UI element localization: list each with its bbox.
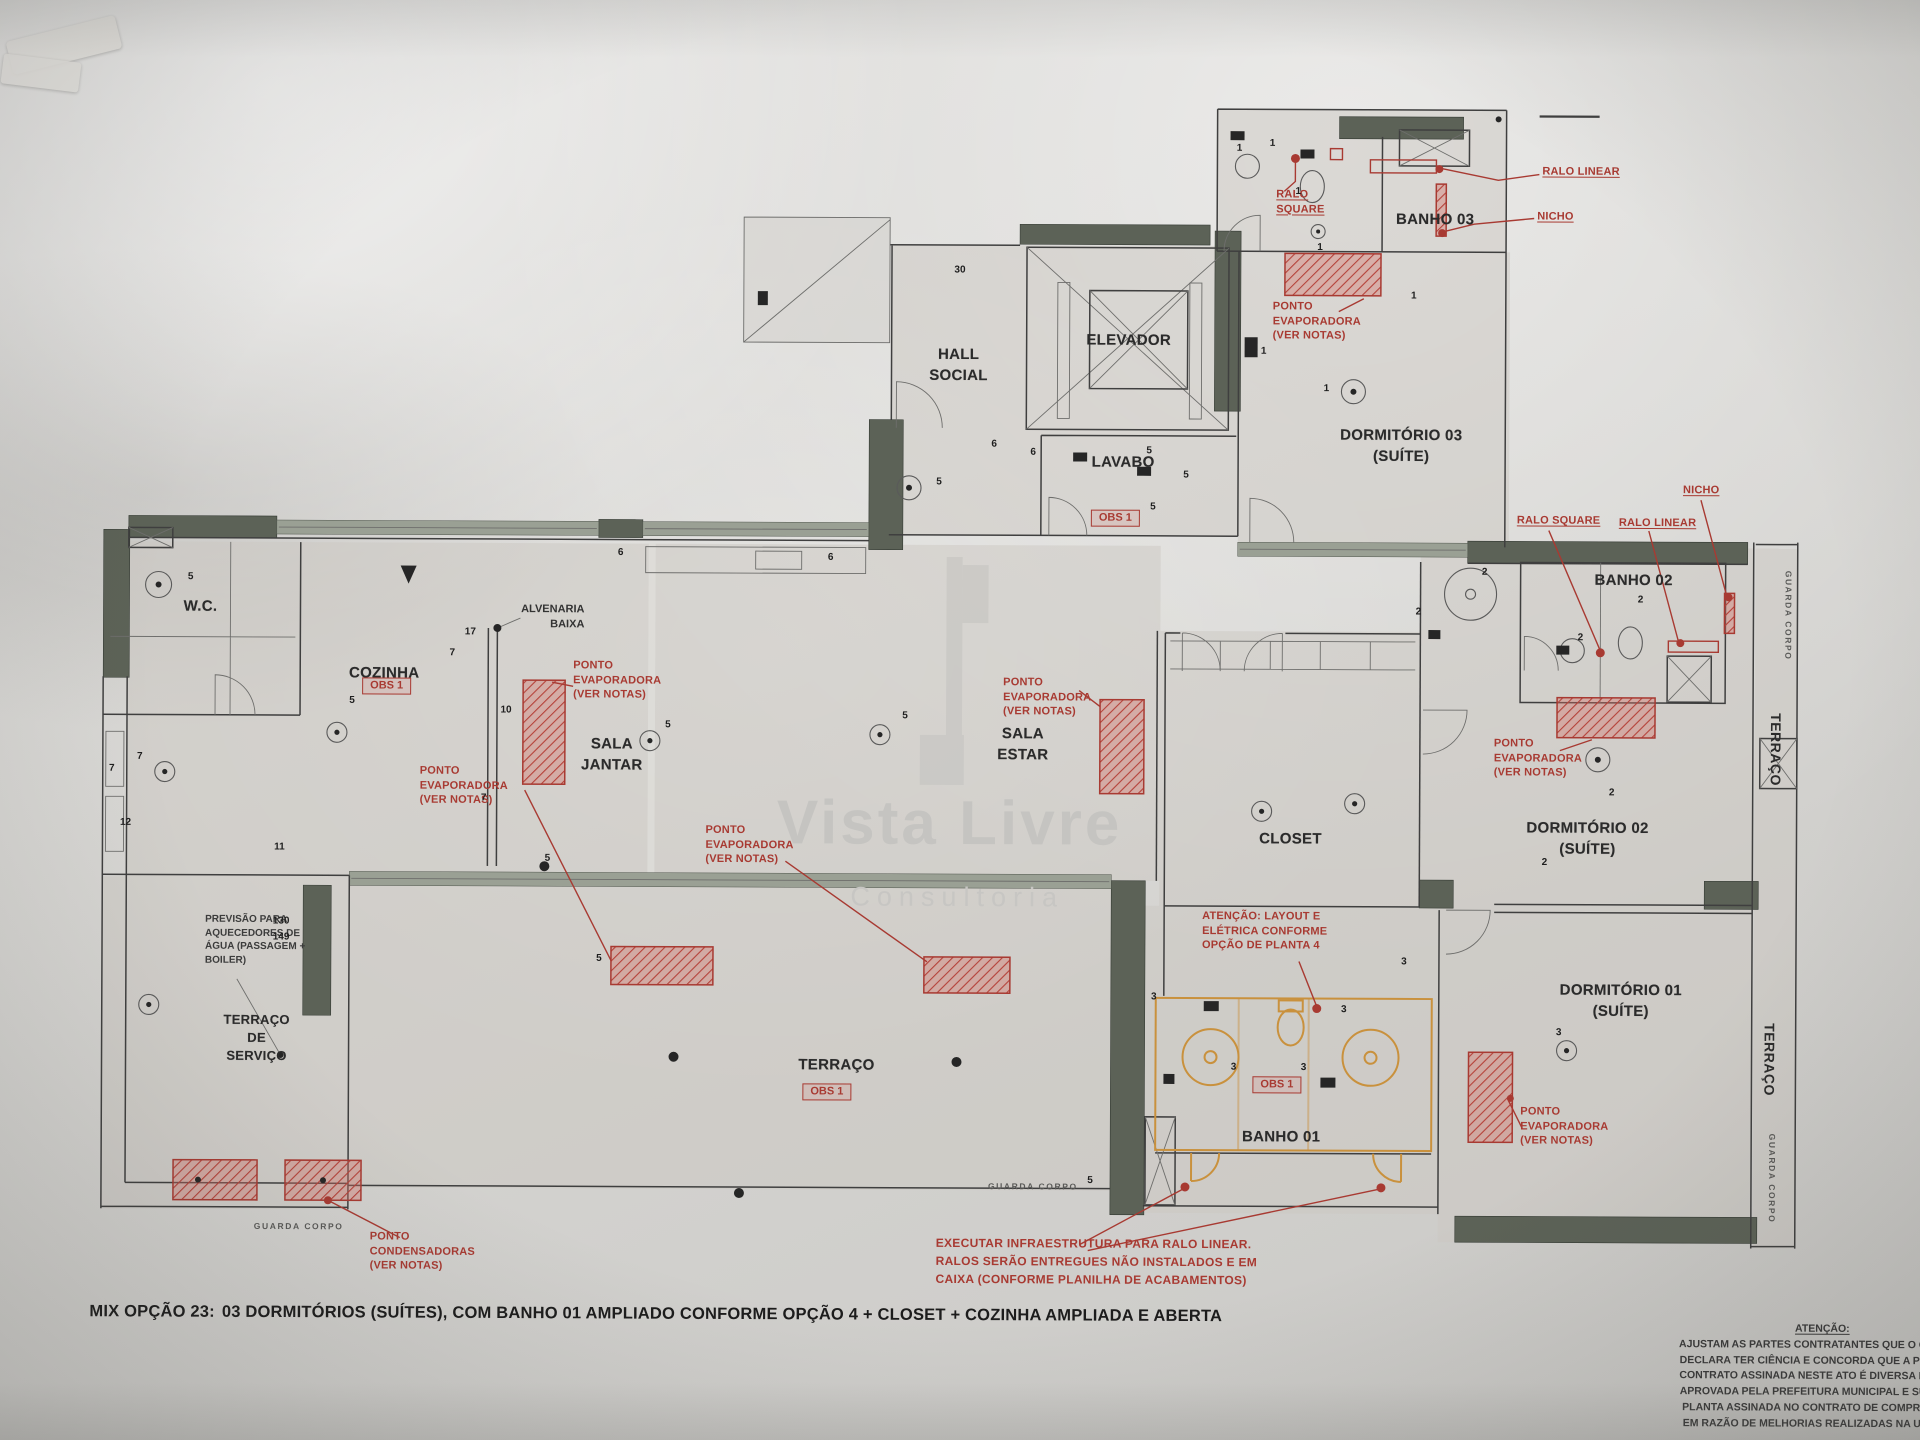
dimension-marker: 7 [109, 763, 115, 774]
annotation-ralo-linear-banho03: RALO LINEAR [1542, 165, 1619, 180]
annotation-guarda-corpo-3: GUARDA CORPO [1783, 571, 1793, 661]
room-label-sala-jantar: SALA JANTAR [581, 734, 643, 776]
dimension-marker: 1 [1261, 346, 1267, 357]
room-label-sala-estar: SALA ESTAR [997, 724, 1048, 766]
dimension-marker: 1 [1237, 143, 1243, 154]
dimension-marker: 30 [954, 264, 965, 275]
dimension-marker: 5 [936, 476, 942, 487]
dimension-marker: 3 [1556, 1027, 1562, 1038]
legal-note: ATENÇÃO: AJUSTAM AS PARTES CONTRATANTES … [1652, 1321, 1920, 1433]
room-label-dormitorio01: DORMITÓRIO 01 (SUÍTE) [1560, 981, 1682, 1023]
dimension-marker: 1 [1270, 138, 1276, 149]
room-label-banho02: BANHO 02 [1594, 571, 1672, 592]
dimension-marker: 6 [618, 547, 624, 558]
room-label-terraco: TERRAÇO [798, 1055, 874, 1076]
room-label-dormitorio02: DORMITÓRIO 02 (SUÍTE) [1526, 818, 1648, 860]
annotation-ralo-linear-banho02: RALO LINEAR [1619, 516, 1696, 531]
legal-note-line: EM RAZÃO DE MELHORIAS REALIZADAS NA UNID… [1652, 1416, 1920, 1433]
dimension-marker: 1 [1317, 242, 1323, 253]
dimension-marker: 5 [1150, 501, 1156, 512]
legal-note-line: AJUSTAM AS PARTES CONTRATANTES QUE O COM… [1652, 1337, 1920, 1354]
room-label-lavabo: LAVABO [1092, 453, 1155, 474]
dimension-marker: 10 [500, 704, 511, 715]
dimension-marker: 6 [991, 439, 997, 450]
room-label-banho03: BANHO 03 [1396, 210, 1474, 231]
dimension-marker: 7 [449, 647, 455, 658]
dimension-marker: 7 [481, 792, 487, 803]
annotation-ponto-evaporadora-dorm01: PONTO EVAPORADORA (VER NOTAS) [1520, 1104, 1608, 1148]
room-label-terraco-lateral-superior: TERRAÇO [1768, 713, 1784, 786]
dimension-marker: 5 [545, 853, 551, 864]
legal-note-title: ATENÇÃO: [1652, 1321, 1920, 1338]
dimension-marker: 5 [665, 719, 671, 730]
dimension-marker: 5 [1087, 1175, 1093, 1186]
dimension-marker: 3 [1231, 1062, 1237, 1073]
room-label-banho01: BANHO 01 [1242, 1127, 1320, 1148]
dimension-marker: 5 [596, 953, 602, 964]
obs1-badge-terraco: OBS 1 [802, 1083, 851, 1100]
annotation-ponto-evaporadora-dorm02: PONTO EVAPORADORA (VER NOTAS) [1494, 736, 1582, 780]
dimension-marker: 2 [1609, 787, 1615, 798]
dimension-marker: 1 [1296, 186, 1302, 197]
dimension-marker: 5 [1146, 445, 1152, 456]
dimension-marker: 6 [828, 552, 834, 563]
annotation-ralo-square-banho02: RALO SQUARE [1517, 513, 1601, 528]
annotation-ponto-evaporadora-terraco-2: PONTO EVAPORADORA (VER NOTAS) [705, 823, 793, 867]
floorplan-photo: Vista Livre Consultoria ELEVADOR HALL SO… [0, 0, 1920, 1440]
annotation-alvenaria-baixa: ALVENARIA BAIXA [518, 602, 584, 632]
dimension-marker: 1 [1411, 290, 1417, 301]
room-label-terraco-servico: TERRAÇO DE SERVIÇO [223, 1011, 290, 1065]
obs1-badge-banho01: OBS 1 [1252, 1076, 1301, 1093]
dimension-marker: 17 [465, 626, 476, 637]
annotation-ponto-evaporadora-sala-estar: PONTO EVAPORADORA (VER NOTAS) [1003, 675, 1091, 719]
dimension-marker: 2 [1578, 632, 1584, 643]
plan-caption-prefix: MIX OPÇÃO 23: [89, 1302, 215, 1321]
room-label-hall-social: HALL SOCIAL [929, 345, 988, 387]
dimension-marker: 2 [1638, 594, 1644, 605]
dimension-marker: 6 [1030, 447, 1036, 458]
dimension-marker: 12 [120, 817, 131, 828]
dimension-marker: 7 [137, 751, 143, 762]
dimension-marker: 1 [1324, 383, 1330, 394]
plan-caption-text: 03 DORMITÓRIOS (SUÍTES), COM BANHO 01 AM… [222, 1303, 1222, 1325]
dimension-marker: 5 [188, 571, 194, 582]
room-label-closet: CLOSET [1259, 829, 1322, 850]
room-label-terraco-lateral-inferior: TERRAÇO [1761, 1023, 1777, 1096]
legal-note-line: APROVADA PELA PREFEITURA MUNICIPAL E SUB… [1652, 1384, 1920, 1401]
watermark-title: Vista Livre [777, 787, 1123, 860]
floorplan-sheet: Vista Livre Consultoria ELEVADOR HALL SO… [0, 0, 1920, 1440]
annotation-ponto-evaporadora-sala-jantar: PONTO EVAPORADORA (VER NOTAS) [573, 658, 661, 702]
annotation-guarda-corpo-2: GUARDA CORPO [988, 1181, 1078, 1191]
room-label-elevador: ELEVADOR [1086, 331, 1171, 352]
annotation-ponto-evaporadora-dorm03: PONTO EVAPORADORA (VER NOTAS) [1273, 299, 1361, 343]
dimension-marker: 130 [273, 916, 290, 927]
dimension-marker: 3 [1301, 1062, 1307, 1073]
room-label-dormitorio03: DORMITÓRIO 03 (SUÍTE) [1340, 426, 1462, 468]
dimension-marker: 2 [1416, 606, 1422, 617]
dimension-marker: 3 [1151, 991, 1157, 1002]
dimension-marker: 3 [1341, 1004, 1347, 1015]
annotation-ponto-condensadoras: PONTO CONDENSADORAS (VER NOTAS) [370, 1229, 475, 1273]
legal-note-line: CONTRATO ASSINADA NESTE ATO É DIVERSA DA… [1652, 1368, 1920, 1385]
dimension-marker: 11 [274, 842, 285, 853]
legal-note-line: DECLARA TER CIÊNCIA E CONCORDA QUE A PLA… [1652, 1353, 1920, 1370]
dimension-marker: 5 [349, 695, 355, 706]
annotation-previsao-aquecedores: PREVISÃO PARA AQUECEDORES DE ÁGUA (PASSA… [205, 913, 306, 967]
dimension-marker: 5 [1183, 469, 1189, 480]
dimension-marker: 149 [273, 932, 290, 943]
obs1-badge-lavabo: OBS 1 [1091, 510, 1140, 527]
dimension-marker: 2 [1542, 857, 1548, 868]
legal-note-line: PLANTA ASSINADA NO CONTRATO DE COMPRA E … [1652, 1400, 1920, 1417]
annotation-guarda-corpo-1: GUARDA CORPO [254, 1221, 344, 1231]
annotation-nicho-banho02: NICHO [1683, 483, 1720, 498]
watermark-subtitle: Consultoria [850, 882, 1064, 914]
annotation-atencao-layout: ATENÇÃO: LAYOUT E ELÉTRICA CONFORME OPÇÃ… [1202, 909, 1327, 953]
annotation-executar-ralo-linear: EXECUTAR INFRAESTRUTURA PARA RALO LINEAR… [936, 1234, 1258, 1289]
annotation-nicho-banho03: NICHO [1537, 210, 1574, 225]
annotation-guarda-corpo-4: GUARDA CORPO [1767, 1134, 1777, 1224]
room-label-wc: W.C. [184, 597, 218, 618]
obs1-badge-cozinha: OBS 1 [362, 677, 411, 694]
dimension-marker: 2 [1482, 567, 1488, 578]
annotation-ponto-evaporadora-terraco-1: PONTO EVAPORADORA (VER NOTAS) [420, 764, 508, 808]
dimension-marker: 3 [1401, 956, 1407, 967]
dimension-marker: 5 [902, 710, 908, 721]
